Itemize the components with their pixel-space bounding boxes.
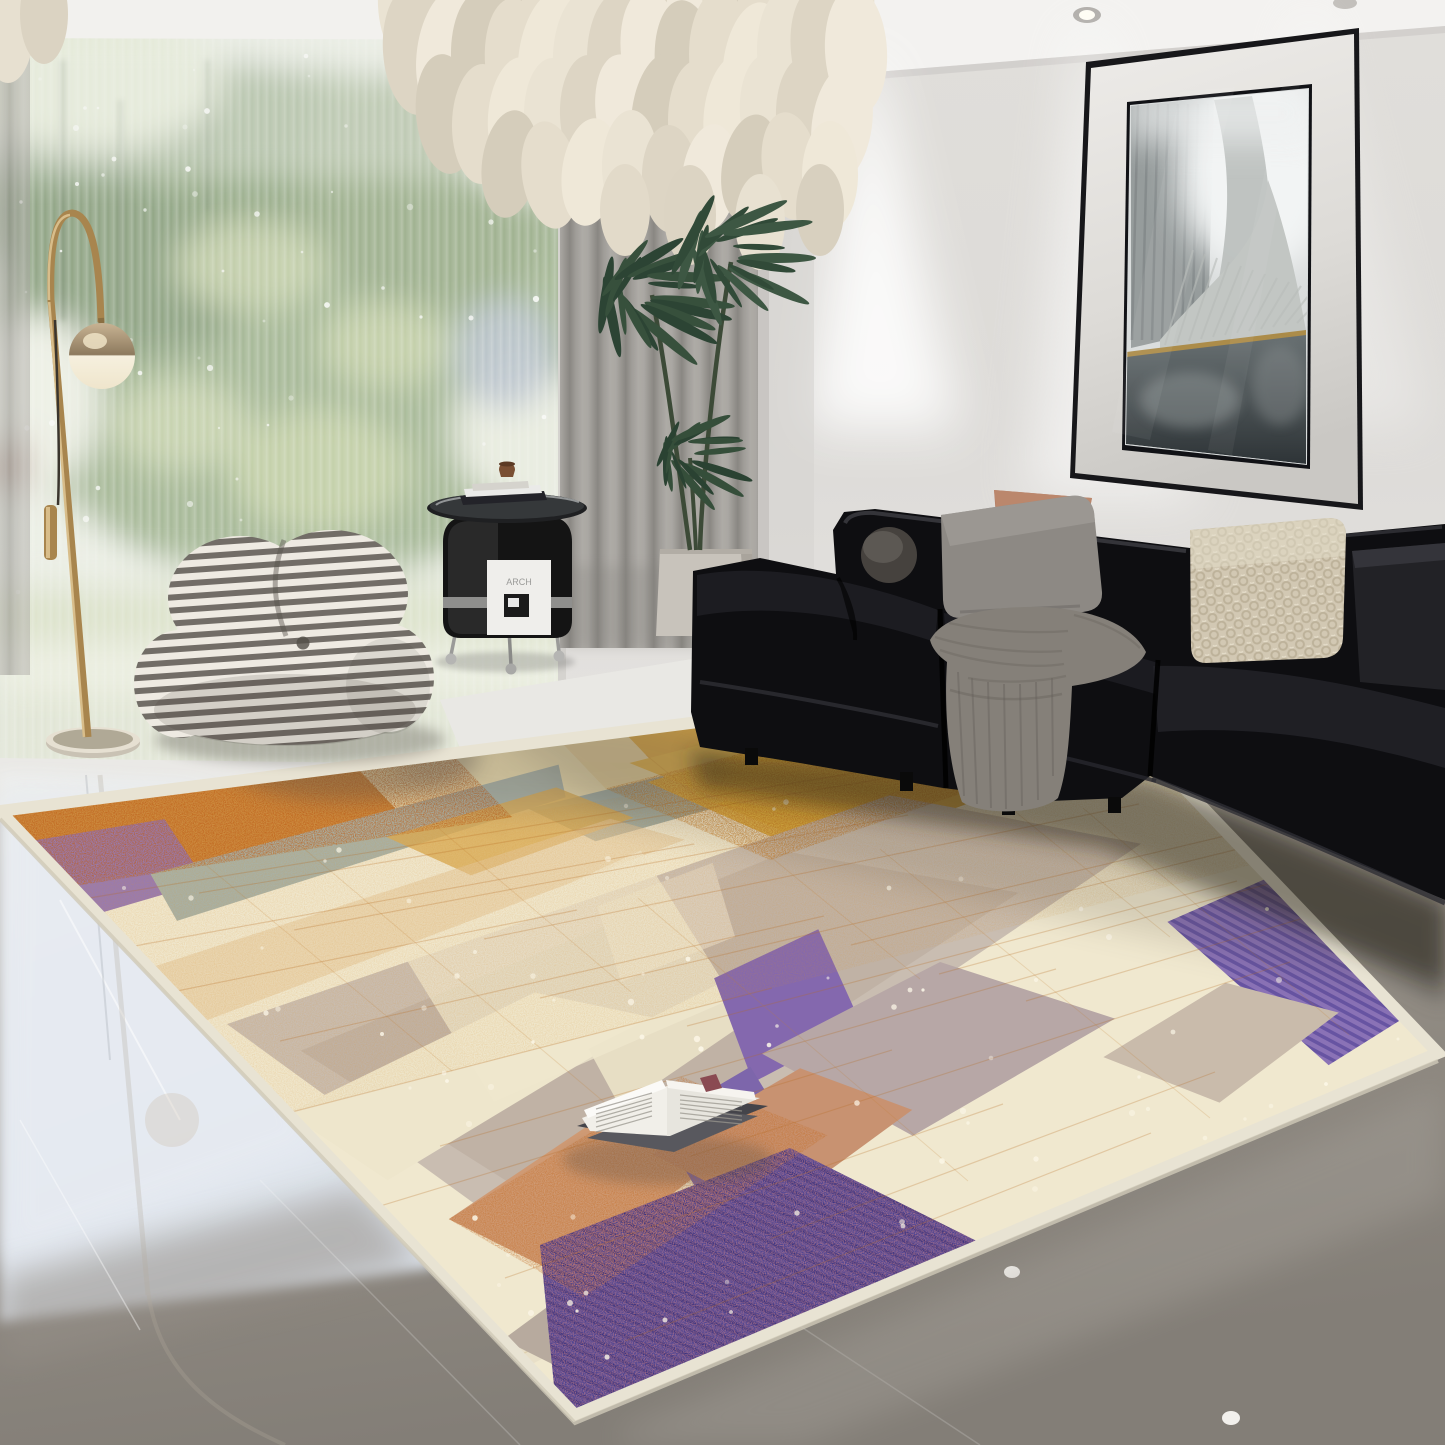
svg-text:ARCH: ARCH (506, 577, 532, 587)
